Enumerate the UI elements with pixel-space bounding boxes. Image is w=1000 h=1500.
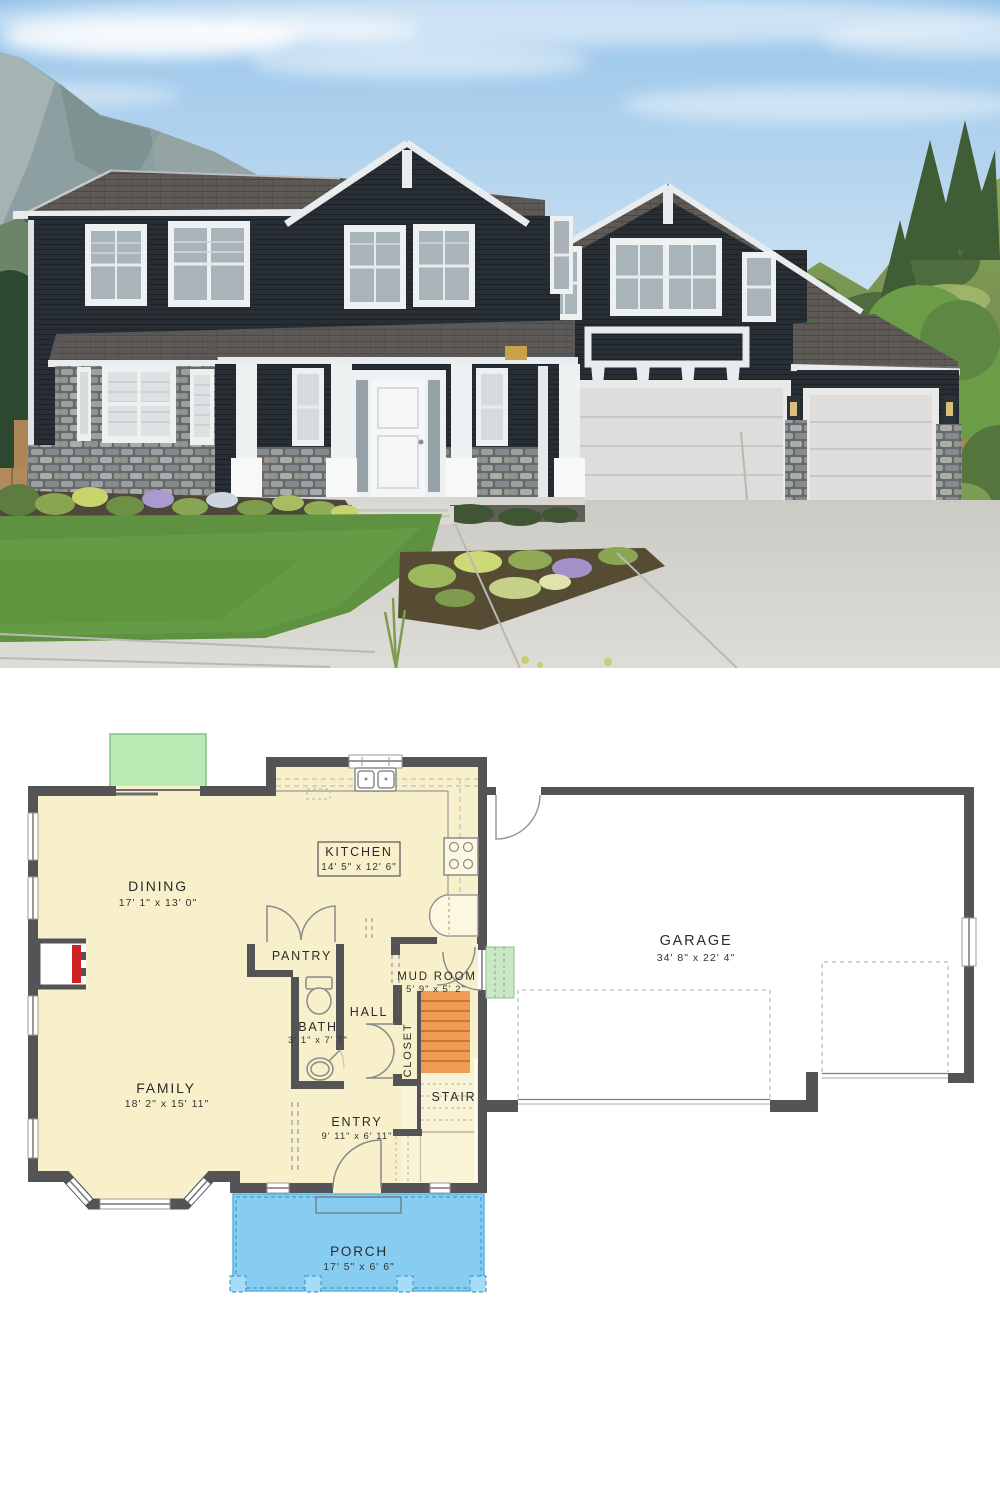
svg-text:17' 1" x 13' 0": 17' 1" x 13' 0" [119, 897, 197, 909]
svg-text:DINING: DINING [128, 878, 188, 894]
svg-text:GARAGE: GARAGE [660, 933, 733, 949]
svg-text:BATH: BATH [298, 1020, 338, 1034]
svg-text:KITCHEN: KITCHEN [325, 845, 392, 859]
svg-text:PANTRY: PANTRY [272, 949, 332, 963]
svg-text:PORCH: PORCH [330, 1244, 388, 1259]
svg-text:5' 9" x 5' 2": 5' 9" x 5' 2" [406, 984, 466, 995]
svg-text:MUD ROOM: MUD ROOM [397, 971, 477, 983]
svg-text:STAIR: STAIR [432, 1090, 477, 1104]
svg-text:9' 11" x 6' 11": 9' 11" x 6' 11" [322, 1131, 393, 1142]
svg-text:3' 1" x 7' 7": 3' 1" x 7' 7" [288, 1035, 348, 1046]
svg-text:17' 5" x 6' 6": 17' 5" x 6' 6" [323, 1261, 395, 1273]
svg-text:ENTRY: ENTRY [331, 1115, 382, 1129]
svg-text:34' 8" x 22' 4": 34' 8" x 22' 4" [657, 952, 735, 964]
svg-text:HALL: HALL [350, 1005, 388, 1019]
svg-text:14' 5" x 12' 6": 14' 5" x 12' 6" [321, 862, 396, 873]
svg-text:18' 2" x 15' 11": 18' 2" x 15' 11" [125, 1098, 209, 1110]
svg-text:FAMILY: FAMILY [136, 1080, 196, 1096]
svg-text:CLOSET: CLOSET [402, 1023, 414, 1078]
